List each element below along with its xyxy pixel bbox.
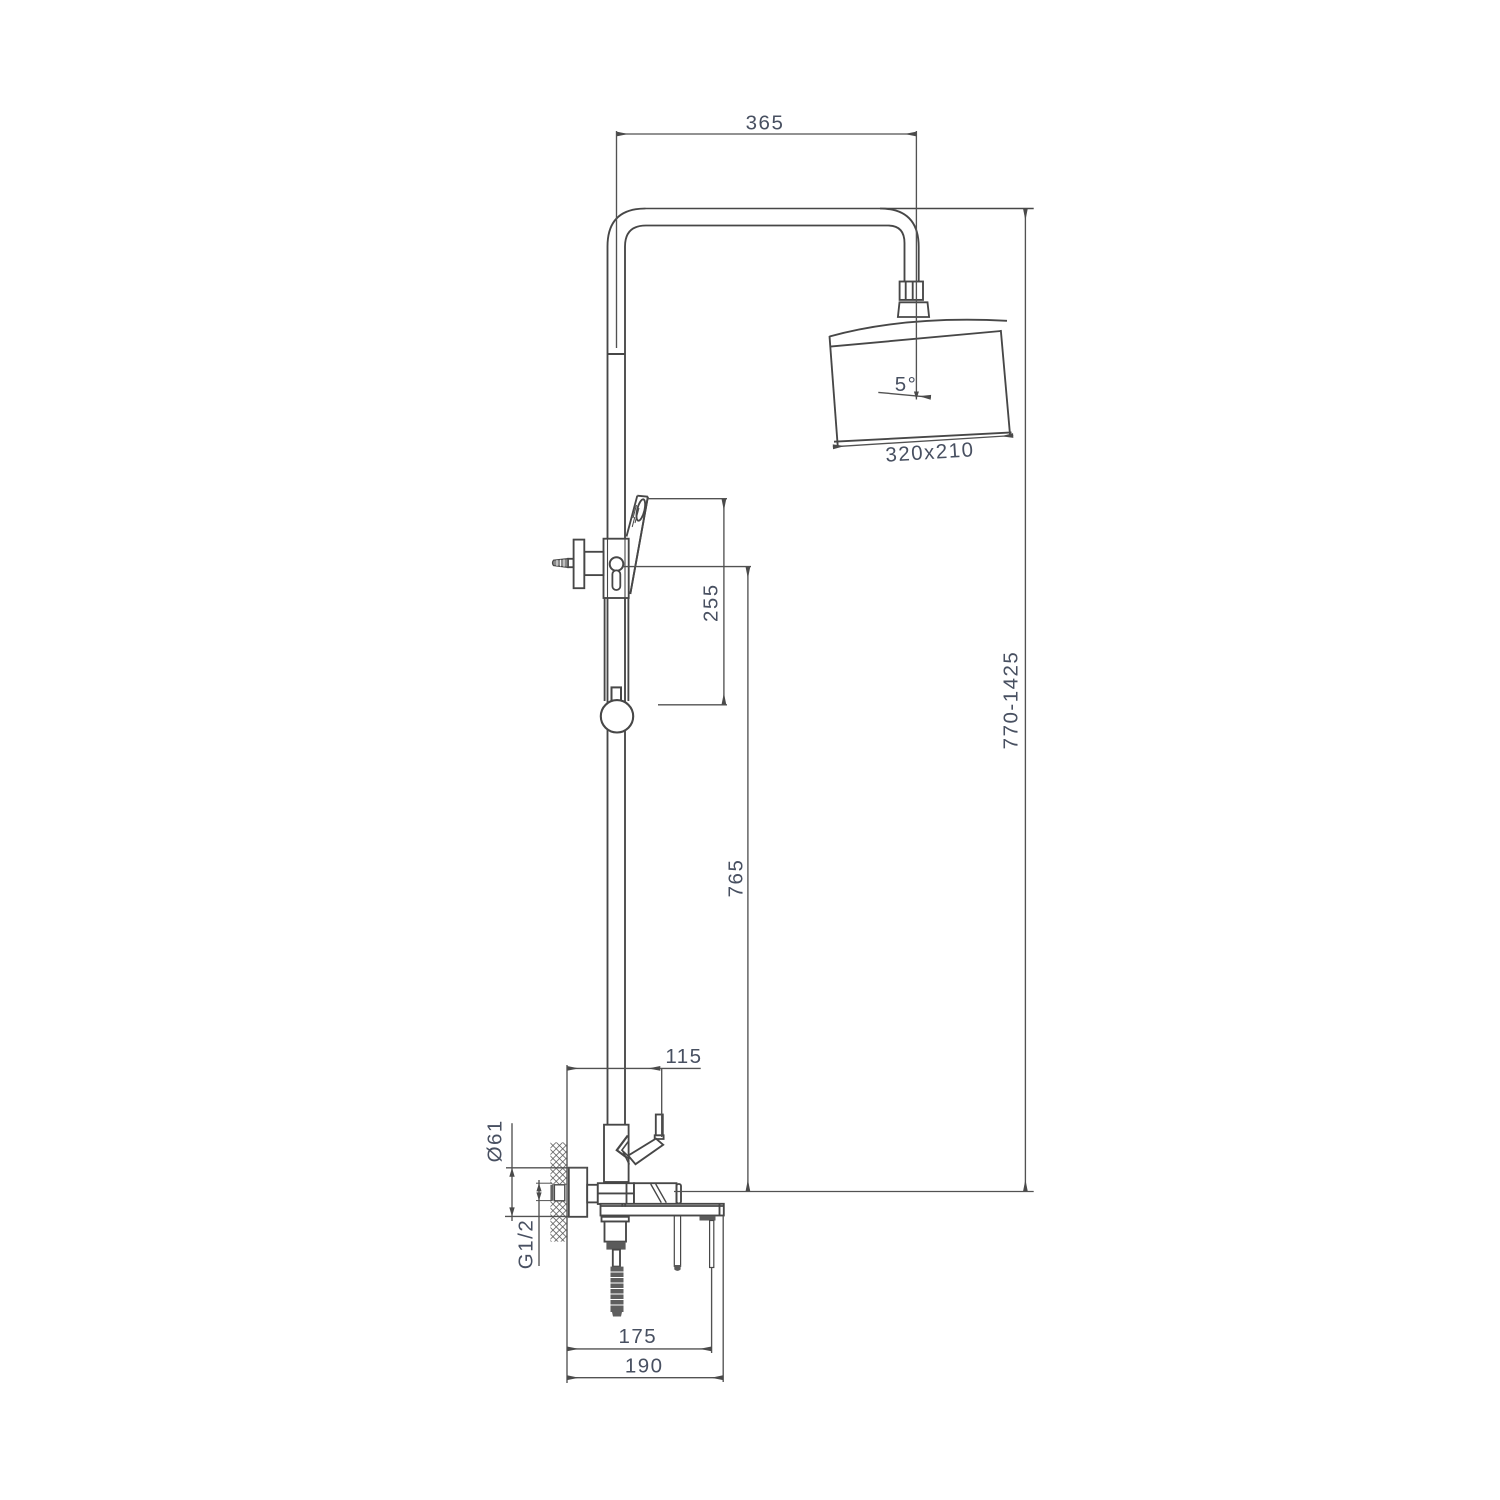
svg-text:G1/2: G1/2	[515, 1219, 538, 1269]
svg-text:5°: 5°	[895, 373, 918, 396]
svg-text:255: 255	[699, 583, 722, 622]
svg-text:320x210: 320x210	[885, 438, 975, 467]
svg-text:765: 765	[725, 859, 748, 898]
svg-text:115: 115	[665, 1045, 702, 1068]
svg-text:175: 175	[618, 1325, 657, 1348]
svg-text:190: 190	[625, 1355, 664, 1378]
svg-text:Ø61: Ø61	[483, 1119, 506, 1162]
svg-text:770-1425: 770-1425	[1000, 651, 1023, 750]
svg-text:365: 365	[746, 112, 785, 135]
